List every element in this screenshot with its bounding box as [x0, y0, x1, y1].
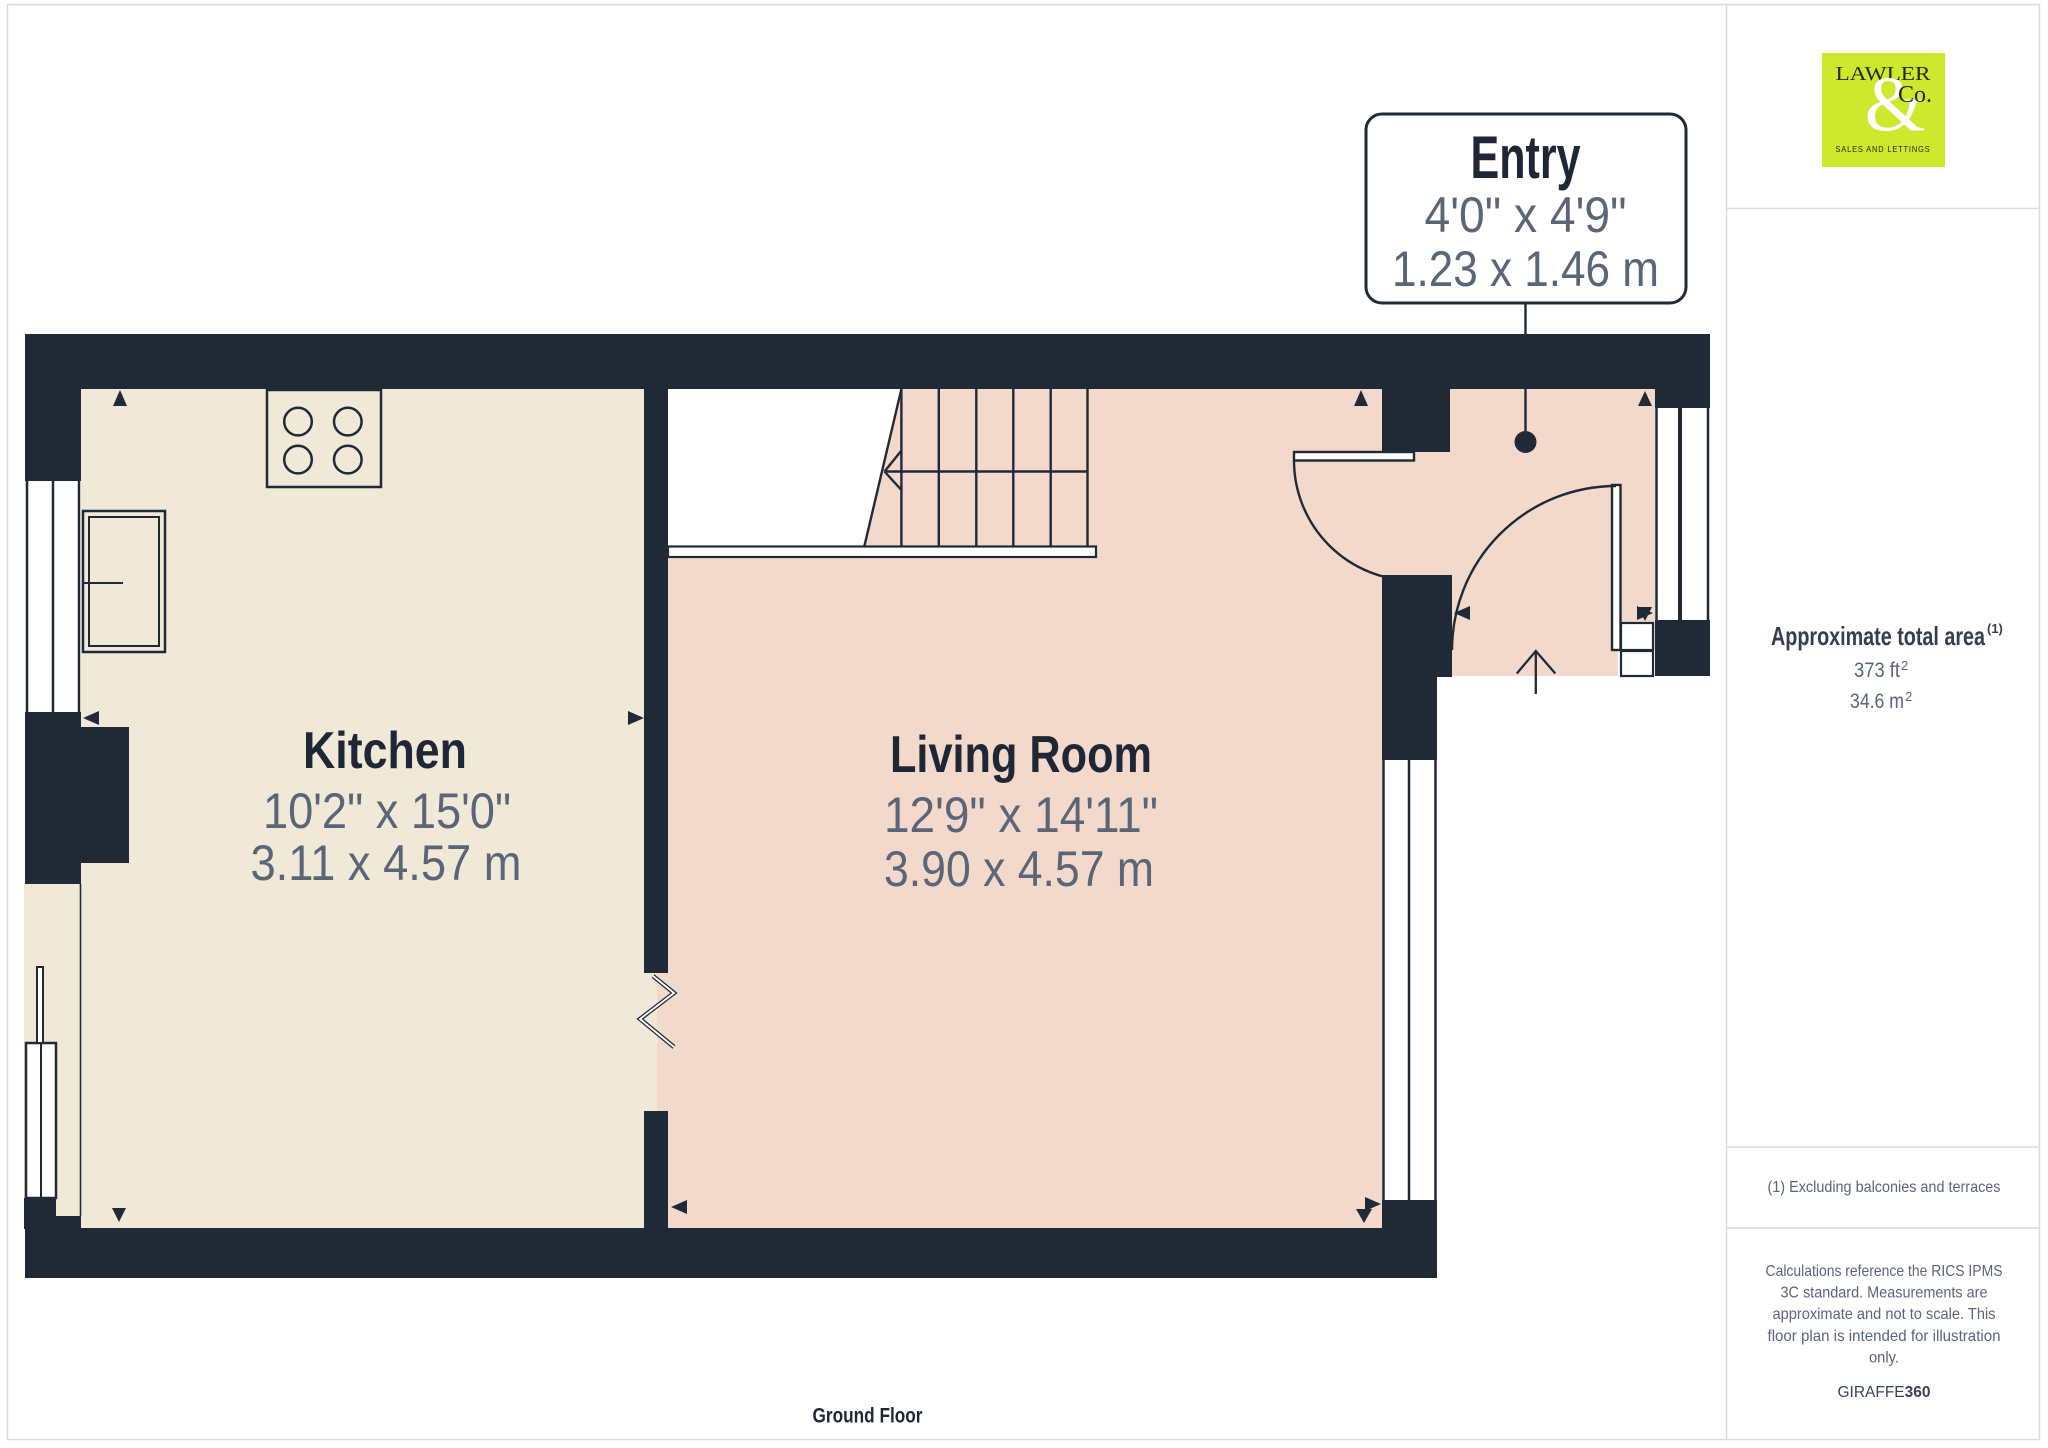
svg-text:3C standard. Measurements are: 3C standard. Measurements are [1781, 1285, 1988, 1302]
svg-text:373 ft: 373 ft [1854, 659, 1900, 682]
svg-text:1.23 x 1.46 m: 1.23 x 1.46 m [1392, 241, 1659, 297]
svg-text:only.: only. [1869, 1349, 1899, 1366]
svg-text:floor plan is intended for ill: floor plan is intended for illustration [1768, 1328, 2001, 1345]
svg-text:2: 2 [1901, 658, 1908, 673]
svg-text:(1) Excluding balconies and te: (1) Excluding balconies and terraces [1768, 1179, 2001, 1196]
svg-text:3.90 x 4.57 m: 3.90 x 4.57 m [884, 841, 1154, 897]
svg-text:34.6 m: 34.6 m [1850, 690, 1904, 713]
svg-text:Ground Floor: Ground Floor [813, 1405, 923, 1428]
svg-text:Approximate total area: Approximate total area [1771, 621, 1985, 651]
svg-text:Calculations reference the RIC: Calculations reference the RICS IPMS [1766, 1263, 2003, 1280]
svg-text:Kitchen: Kitchen [303, 722, 467, 780]
svg-text:(1): (1) [1987, 621, 2003, 636]
svg-text:12'9" x 14'11": 12'9" x 14'11" [884, 787, 1158, 843]
svg-text:10'2" x 15'0": 10'2" x 15'0" [263, 783, 511, 839]
svg-text:4'0" x 4'9": 4'0" x 4'9" [1425, 187, 1627, 243]
svg-text:Living Room: Living Room [890, 726, 1152, 784]
svg-text:2: 2 [1905, 689, 1912, 704]
svg-text:Entry: Entry [1471, 124, 1581, 191]
svg-text:3.11 x 4.57 m: 3.11 x 4.57 m [251, 835, 522, 891]
svg-text:Co.: Co. [1898, 82, 1932, 108]
svg-text:approximate and not to scale.: approximate and not to scale. This [1773, 1306, 1996, 1323]
svg-text:GIRAFFE360: GIRAFFE360 [1837, 1384, 1930, 1401]
svg-text:SALES AND LETTINGS: SALES AND LETTINGS [1836, 144, 1931, 154]
